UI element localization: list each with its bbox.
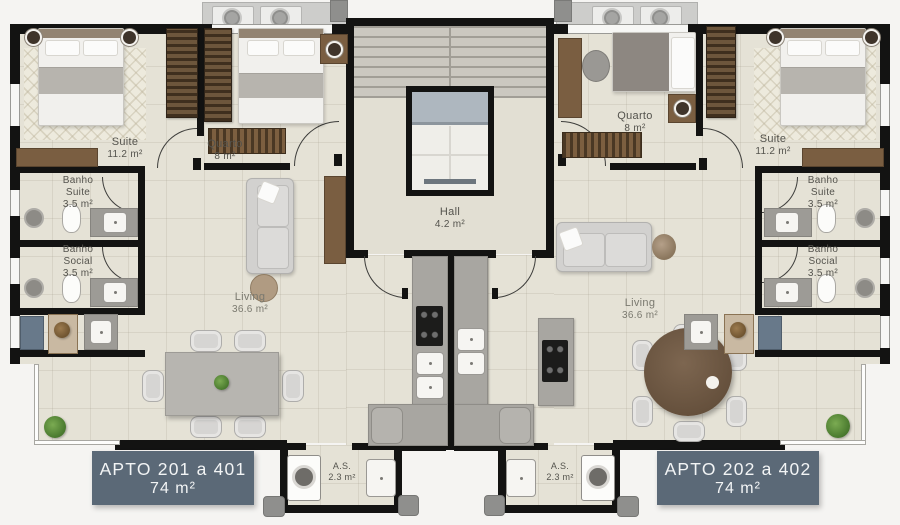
dining-chair <box>142 370 164 402</box>
label-banho-social-right: Banho Social 3.5 m² <box>785 244 861 279</box>
bed-quarto-right <box>612 32 696 92</box>
wall <box>610 163 696 170</box>
room-name: Banho <box>785 244 861 256</box>
room-name: Suite <box>40 187 116 199</box>
headboard <box>39 29 123 38</box>
label-living-right: Living 36.6 m² <box>595 297 685 322</box>
headboard <box>781 29 865 38</box>
room-name: Living <box>595 297 685 310</box>
label-quarto-left: Quarto 8 m² <box>185 138 265 163</box>
room-name: Hall <box>415 206 485 219</box>
badge-title: APTO 202 a 402 <box>657 459 819 480</box>
dining-chair <box>190 330 222 352</box>
room-name: Suite <box>80 136 170 149</box>
dining-chair <box>190 416 222 438</box>
dining-chair <box>234 330 266 352</box>
door-hinge <box>334 154 342 166</box>
elevator-floor-line <box>412 154 488 156</box>
elevator-door <box>424 179 476 184</box>
door-hinge <box>699 158 707 170</box>
room-area: 3.5 m² <box>40 268 116 280</box>
plant-floor <box>826 414 850 438</box>
wall-lamp-icon <box>25 29 42 46</box>
kitchen-sink-icon <box>416 376 444 399</box>
room-name: Living <box>205 291 295 304</box>
wall-lamp-icon <box>767 29 784 46</box>
sofa-cushion <box>605 233 647 267</box>
room-area: 36.6 m² <box>595 310 685 322</box>
washing-machine-icon <box>287 455 321 501</box>
door-hinge <box>492 288 498 299</box>
window <box>10 258 20 284</box>
plate <box>706 376 719 389</box>
dining-chair <box>726 396 747 427</box>
pillow <box>247 40 279 56</box>
room-name: A.S. <box>536 461 584 472</box>
room-name: Banho <box>40 175 116 187</box>
wall-lamp-icon <box>121 29 138 46</box>
door-mat <box>398 495 419 516</box>
wall <box>755 166 890 173</box>
exterior-notch-right <box>864 364 890 444</box>
bench-quarto-right <box>562 132 642 158</box>
room-name: Suite <box>728 133 818 146</box>
washbasin-icon <box>690 320 712 344</box>
blanket <box>39 67 123 94</box>
shower-icon <box>855 208 875 228</box>
room-area: 3.5 m² <box>785 268 861 280</box>
wall <box>115 440 287 450</box>
badge-area: 74 m² <box>92 480 254 498</box>
window <box>880 316 890 348</box>
wall-lamp-icon <box>863 29 880 46</box>
pillow <box>825 40 860 56</box>
wall <box>696 24 703 136</box>
cooktop-icon <box>542 340 568 382</box>
glass-wall <box>861 364 866 444</box>
plant-centerpiece <box>214 375 229 390</box>
label-hall: Hall 4.2 m² <box>415 206 485 231</box>
wall <box>10 166 145 173</box>
room-area: 3.5 m² <box>40 199 116 211</box>
apartment-badge-left: APTO 201 a 401 74 m² <box>92 451 254 505</box>
bed-quarto-left <box>238 28 324 124</box>
window <box>880 84 890 126</box>
wall <box>204 163 290 170</box>
sofa-left <box>246 178 294 274</box>
table-lamp-icon <box>674 100 691 117</box>
kitchen-sink-icon <box>416 352 444 375</box>
wall <box>197 24 204 136</box>
label-quarto-right: Quarto 8 m² <box>595 110 675 135</box>
pillow <box>283 40 315 56</box>
apartment-badge-right: APTO 202 a 402 74 m² <box>657 451 819 505</box>
blanket <box>781 67 865 94</box>
room-area: 2.3 m² <box>318 472 366 483</box>
washer-drum <box>292 465 316 489</box>
label-banho-suite-right: Banho Suite 3.5 m² <box>785 175 861 210</box>
elevator-cab <box>412 92 488 125</box>
bed-suite-left <box>38 28 124 126</box>
door-mat <box>263 496 285 517</box>
door-mat <box>484 495 505 516</box>
room-name: A.S. <box>318 461 366 472</box>
desk-quarto-right <box>558 38 582 118</box>
room-area: 8 m² <box>595 123 675 135</box>
dining-chair <box>282 370 304 402</box>
exterior-notch-left <box>10 364 36 444</box>
wall-service-right <box>594 443 620 450</box>
wall <box>755 350 890 357</box>
room-area: 3.5 m² <box>785 199 861 211</box>
shaft-block <box>758 316 782 350</box>
label-banho-suite-left: Banho Suite 3.5 m² <box>40 175 116 210</box>
sofa-right <box>556 222 652 272</box>
wall-service-right <box>498 505 620 513</box>
badge-area: 74 m² <box>657 480 819 498</box>
room-area: 11.2 m² <box>728 146 818 158</box>
glass-wall <box>780 440 866 445</box>
label-suite-right: Suite 11.2 m² <box>728 133 818 158</box>
label-service-right: A.S. 2.3 m² <box>536 461 584 482</box>
wardrobe-quarto-left <box>204 28 232 122</box>
label-suite-left: Suite 11.2 m² <box>80 136 170 161</box>
bed-suite-right <box>780 28 866 126</box>
label-service-left: A.S. 2.3 m² <box>318 461 366 482</box>
plant-floor <box>44 416 66 438</box>
shower-icon <box>24 278 44 298</box>
glass-wall <box>34 440 120 445</box>
room-area: 36.6 m² <box>205 304 295 316</box>
pillow <box>787 40 822 56</box>
laundry-tank-icon <box>506 459 536 497</box>
pillow <box>83 40 118 56</box>
glass-wall <box>34 364 39 444</box>
room-name: Social <box>40 256 116 268</box>
wall-core <box>546 18 554 258</box>
washbasin-icon <box>90 320 112 344</box>
headboard <box>239 29 323 38</box>
pillow <box>671 37 695 89</box>
laundry-tank-icon <box>366 459 396 497</box>
cabinet-plant <box>54 322 70 338</box>
fridge-left <box>371 407 403 444</box>
cooktop-icon <box>416 306 443 346</box>
door-mat <box>617 496 639 517</box>
dining-chair <box>632 396 653 427</box>
wardrobe-suite-right <box>706 26 736 118</box>
pillow <box>45 40 80 56</box>
dining-chair <box>234 416 266 438</box>
room-area: 8 m² <box>185 151 265 163</box>
washer-drum <box>586 465 610 489</box>
blanket <box>239 73 323 98</box>
room-area: 4.2 m² <box>415 219 485 231</box>
cabinet-plant <box>730 322 746 338</box>
window <box>10 316 20 348</box>
washbasin-icon <box>775 282 799 303</box>
room-name: Quarto <box>595 110 675 123</box>
dining-chair <box>673 421 705 442</box>
plant-pot-right <box>652 234 676 260</box>
door-hinge <box>402 288 408 299</box>
room-name: Quarto <box>185 138 265 151</box>
washbasin-icon <box>103 212 127 233</box>
washbasin-icon <box>775 212 799 233</box>
wall-service-left <box>280 443 306 450</box>
duct-block <box>554 0 572 22</box>
kitchen-sink-icon <box>457 352 485 375</box>
label-living-left: Living 36.6 m² <box>205 291 295 316</box>
window <box>880 190 890 216</box>
sofa-cushion <box>257 227 289 269</box>
table-lamp-icon <box>326 41 343 58</box>
wall <box>755 308 890 315</box>
room-name: Social <box>785 256 861 268</box>
washing-machine-icon <box>581 455 615 501</box>
room-name: Banho <box>40 244 116 256</box>
fridge-right <box>499 407 531 444</box>
room-area: 2.3 m² <box>536 472 584 483</box>
desk-chair-right <box>582 50 610 82</box>
floorplan-canvas: { "apartments": { "left": { "badge": {"l… <box>0 0 900 525</box>
shower-icon <box>24 208 44 228</box>
washbasin-icon <box>103 282 127 303</box>
wardrobe-suite-left <box>166 28 198 118</box>
window <box>880 258 890 284</box>
blanket <box>613 33 669 91</box>
window <box>10 84 20 126</box>
room-area: 11.2 m² <box>80 149 170 161</box>
room-name: Suite <box>785 187 861 199</box>
room-name: Banho <box>785 175 861 187</box>
shaft-block <box>20 316 44 350</box>
badge-title: APTO 201 a 401 <box>92 459 254 480</box>
label-banho-social-left: Banho Social 3.5 m² <box>40 244 116 279</box>
wall-core <box>346 18 554 26</box>
tv-rack-left <box>324 176 346 264</box>
kitchen-sink-icon <box>457 328 485 351</box>
wall-service-left <box>280 505 402 513</box>
window <box>10 190 20 216</box>
shower-icon <box>855 278 875 298</box>
